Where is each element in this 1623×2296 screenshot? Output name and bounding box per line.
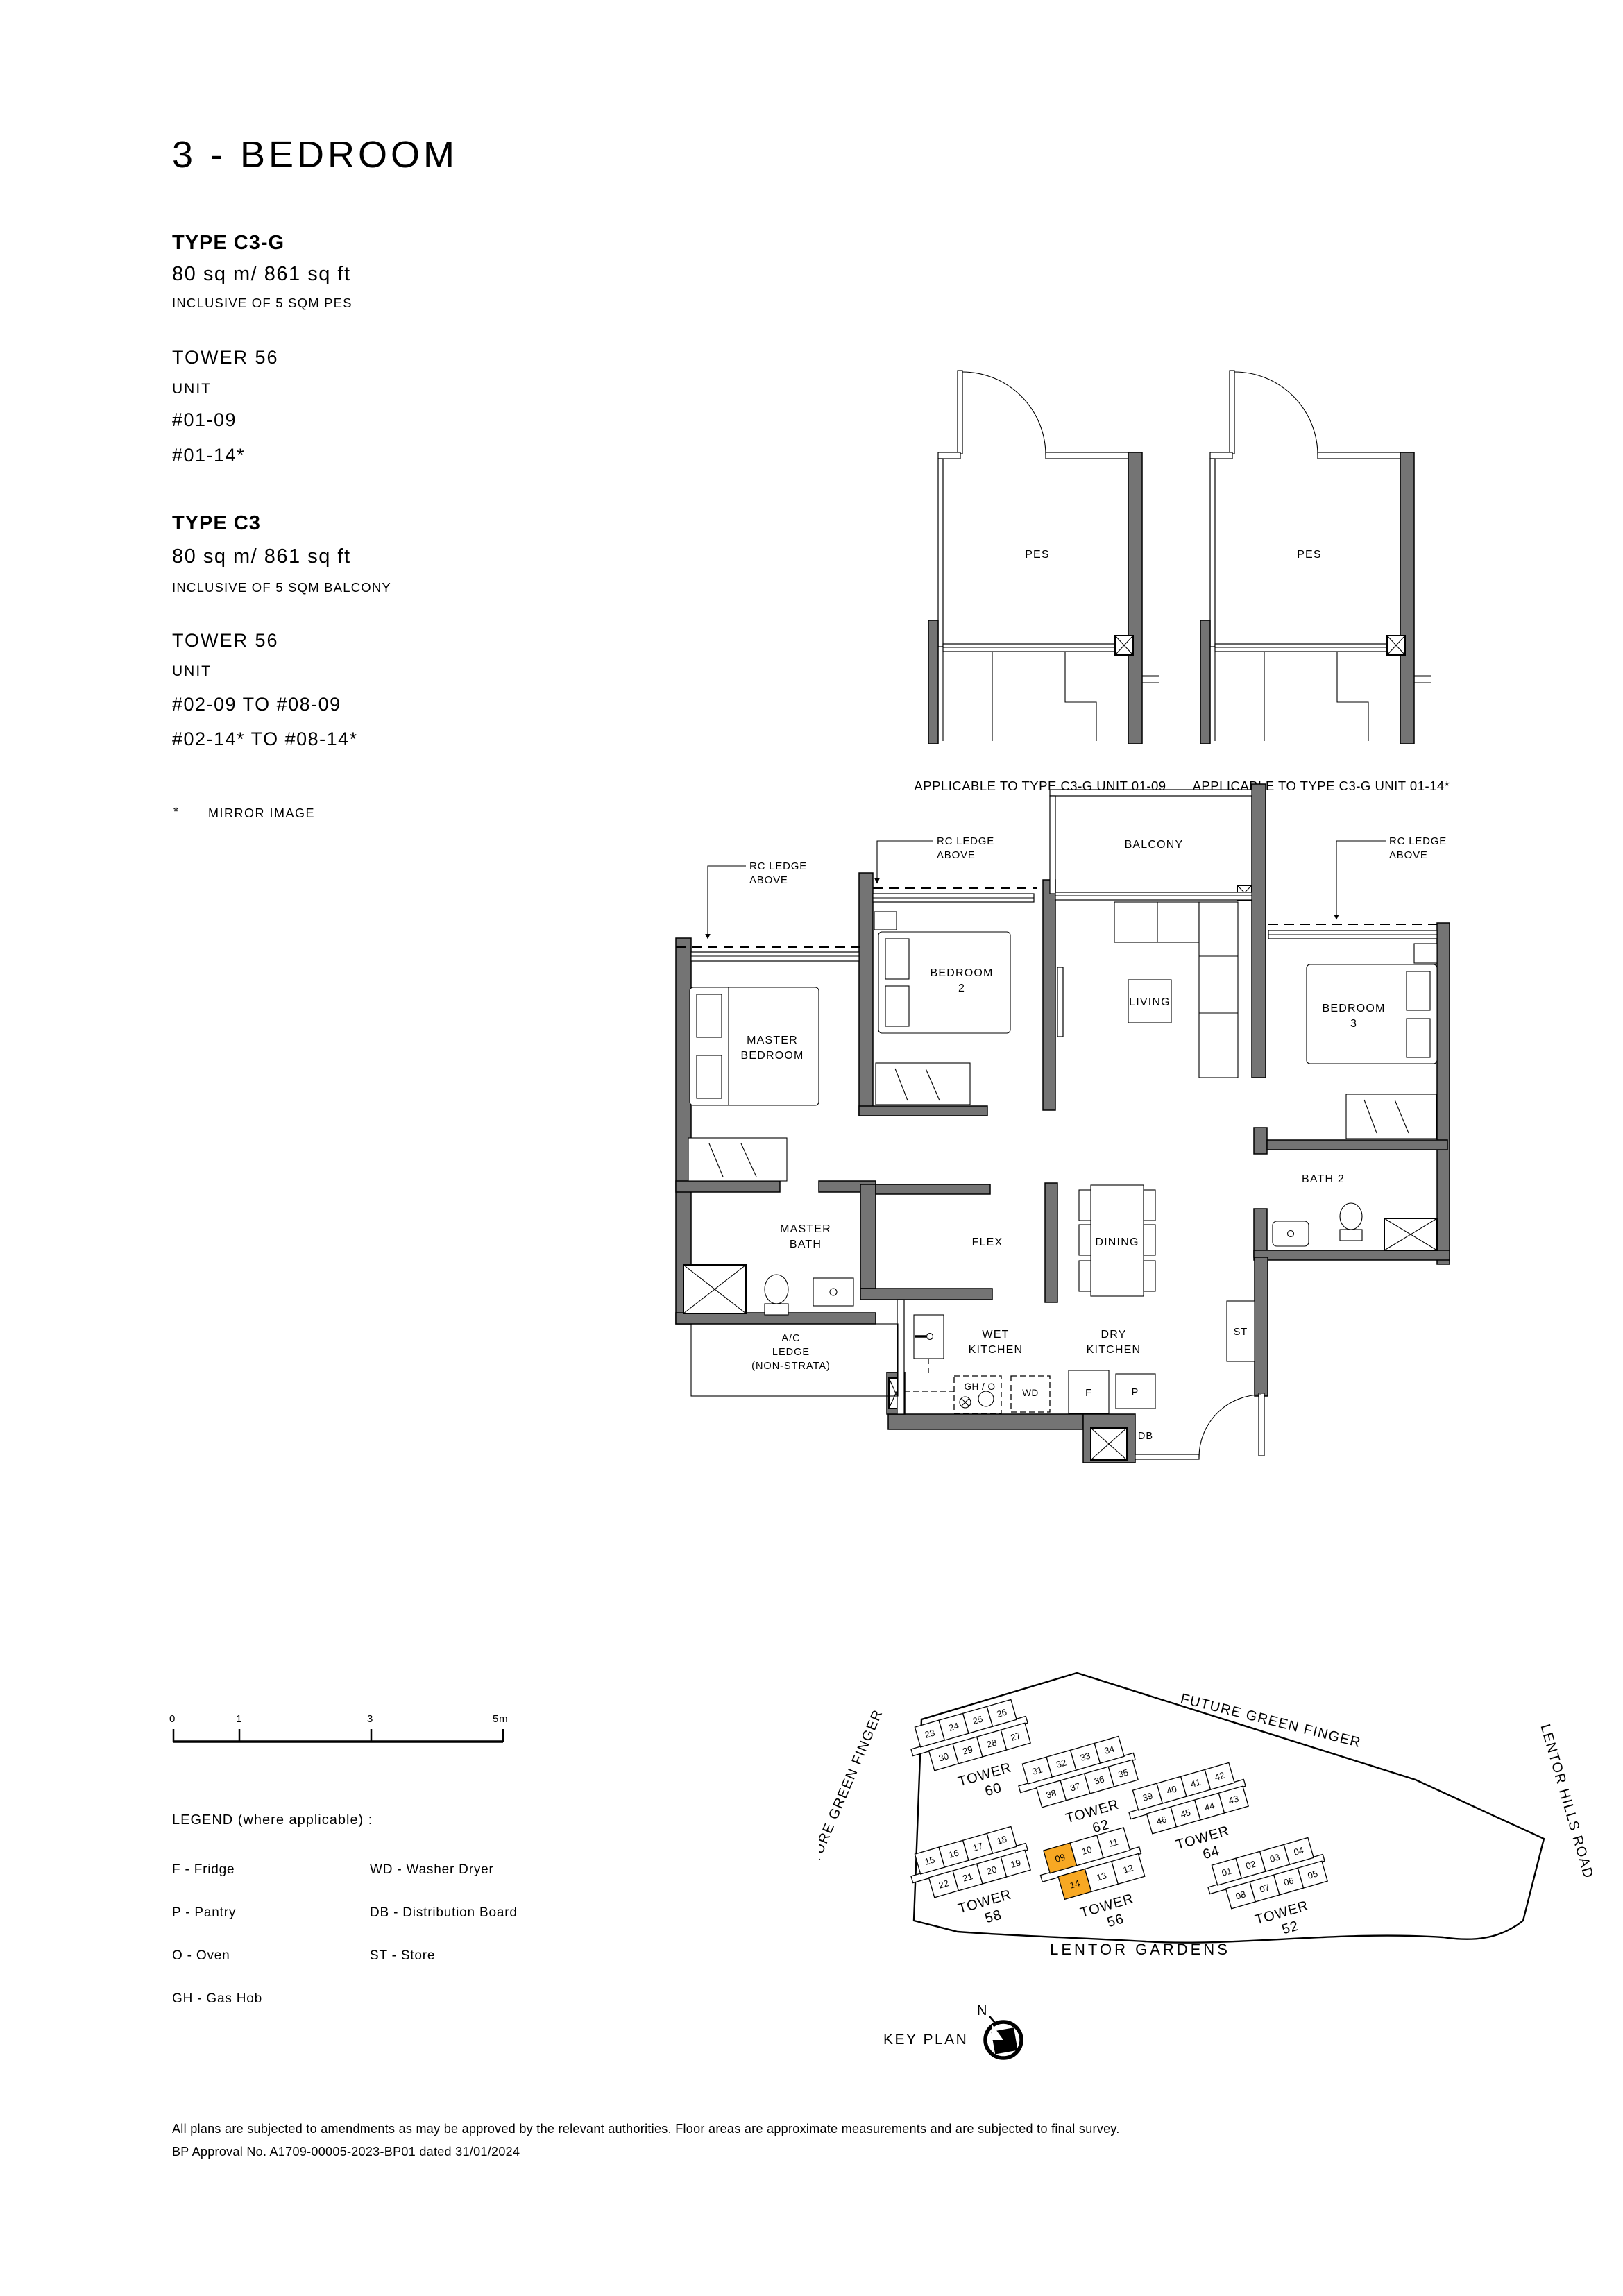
legend-pantry: P - Pantry <box>172 1905 236 1921</box>
ac-ledge-label-1: A/C <box>781 1333 800 1344</box>
ac-ledge-label-3: (NON-STRATA) <box>751 1361 831 1372</box>
rc-ledge-line1: RC LEDGE <box>749 860 807 872</box>
mirror-note-text: MIRROR IMAGE <box>208 806 315 821</box>
master-bedroom-label-2: BEDROOM <box>740 1050 804 1062</box>
keyplan-tower-52: 0102030408070605TOWER52 <box>1203 1835 1342 1954</box>
type1-tower: TOWER 56 <box>172 347 279 368</box>
type2-tower: TOWER 56 <box>172 630 279 652</box>
type1-note: INCLUSIVE OF 5 SQM PES <box>172 296 352 311</box>
keyplan-tower-56: 091011141312TOWER56 <box>1034 1825 1159 1944</box>
windows-and-ledges <box>676 790 1437 1459</box>
mini-plan-unit-01-09: PES <box>923 355 1159 744</box>
wet-kitchen-label-2: KITCHEN <box>969 1344 1023 1356</box>
type2-unit-2: #02-14* TO #08-14* <box>172 729 358 750</box>
north-label: N <box>977 2003 987 2018</box>
disclaimer-line-1: All plans are subjected to amendments as… <box>172 2122 1120 2136</box>
master-bath-label-1: MASTER <box>780 1223 831 1235</box>
mini-plan-room-label: PES <box>1025 549 1050 561</box>
rc-ledge-line1: RC LEDGE <box>1389 835 1447 847</box>
dry-kitchen-label-1: DRY <box>1101 1329 1126 1341</box>
keyplan-tower-number: 60 <box>983 1780 1003 1800</box>
keyplan-tower-60: 2324252630292827TOWER60 <box>906 1697 1045 1816</box>
fridge-label: F <box>1085 1388 1092 1399</box>
key-plan: FUTURE GREEN FINGER FUTURE GREEN FINGER … <box>819 1589 1610 2061</box>
type2-note: INCLUSIVE OF 5 SQM BALCONY <box>172 580 391 595</box>
distribution-board-label: DB <box>1138 1431 1153 1442</box>
washer-dryer-label: WD <box>1022 1388 1039 1398</box>
master-bedroom-label-1: MASTER <box>747 1035 798 1046</box>
road-future-green-finger-top: FUTURE GREEN FINGER <box>1179 1691 1363 1751</box>
rc-ledge-line1: RC LEDGE <box>937 835 994 847</box>
key-plan-label: KEY PLAN <box>883 2032 968 2048</box>
road-lentor-gardens: LENTOR GARDENS <box>1050 1941 1230 1958</box>
dining-label: DINING <box>1095 1236 1139 1248</box>
living-label: LIVING <box>1129 996 1171 1008</box>
rc-ledge-line2: ABOVE <box>749 874 788 886</box>
scale-0: 0 <box>169 1713 176 1725</box>
rc-ledge-line2: ABOVE <box>937 849 976 861</box>
type1-unit-label: UNIT <box>172 381 212 398</box>
legend-store: ST - Store <box>370 1948 435 1964</box>
type2-unit-1: #02-09 TO #08-09 <box>172 694 341 715</box>
mirror-note-symbol: * <box>173 805 180 819</box>
flex-label: FLEX <box>972 1236 1003 1248</box>
legend-oven: O - Oven <box>172 1948 230 1964</box>
legend-gas-hob: GH - Gas Hob <box>172 1991 262 2007</box>
type1-unit-1: #01-09 <box>172 409 237 431</box>
pantry-label: P <box>1132 1387 1139 1398</box>
north-arrow-icon: N <box>977 2003 1021 2058</box>
ac-ledge-label-2: LEDGE <box>772 1347 810 1358</box>
disclaimer-line-2: BP Approval No. A1709-00005-2023-BP01 da… <box>172 2145 520 2159</box>
keyplan-tower-number: 56 <box>1105 1911 1125 1930</box>
bedroom2-label-1: BEDROOM <box>930 967 993 979</box>
store-label: ST <box>1234 1327 1248 1338</box>
keyplan-tower-number: 58 <box>983 1907 1003 1927</box>
bedroom2-label-2: 2 <box>958 983 965 994</box>
type2-area: 80 sq m/ 861 sq ft <box>172 545 351 568</box>
scale-3: 3 <box>367 1713 373 1725</box>
legend-title: LEGEND (where applicable) : <box>172 1812 373 1828</box>
rc-ledge-annotation-right: RC LEDGE ABOVE <box>1336 835 1447 919</box>
balcony-label: BALCONY <box>1125 839 1184 851</box>
rc-ledge-annotation-middle: RC LEDGE ABOVE <box>877 835 994 883</box>
type2-name: TYPE C3 <box>172 512 261 535</box>
legend-distribution-board: DB - Distribution Board <box>370 1905 518 1921</box>
page-title: 3 - BEDROOM <box>172 133 458 176</box>
mini-plan-unit-01-14: PES <box>1195 355 1431 744</box>
rc-ledge-annotation-left: RC LEDGE ABOVE <box>708 860 807 938</box>
type2-unit-label: UNIT <box>172 663 212 680</box>
scale-1: 1 <box>236 1713 242 1725</box>
legend-fridge: F - Fridge <box>172 1862 235 1878</box>
scale-bar: 0 1 3 5m <box>167 1708 527 1757</box>
bedroom3-label-2: 3 <box>1350 1018 1357 1030</box>
floorplan-brochure-page: 3 - BEDROOM TYPE C3-G 80 sq m/ 861 sq ft… <box>0 0 1623 2296</box>
keyplan-tower-58: 1516171822212019TOWER58 <box>906 1824 1045 1943</box>
road-lentor-hills-road: LENTOR HILLS ROAD <box>1537 1722 1596 1880</box>
type1-area: 80 sq m/ 861 sq ft <box>172 263 351 286</box>
master-bath-label-2: BATH <box>790 1239 822 1250</box>
bedroom3-label-1: BEDROOM <box>1322 1003 1385 1014</box>
type1-unit-2: #01-14* <box>172 445 245 466</box>
legend-washer-dryer: WD - Washer Dryer <box>370 1862 494 1878</box>
gas-hob-oven-label: GH / O <box>964 1381 995 1392</box>
bath2-label: BATH 2 <box>1302 1173 1345 1185</box>
wet-kitchen-label-1: WET <box>982 1329 1009 1341</box>
keyplan-tower-62: 3132333438373635TOWER62 <box>1013 1734 1153 1853</box>
mini-plan-room-label: PES <box>1297 549 1322 561</box>
road-future-green-finger-left: FUTURE GREEN FINGER <box>819 1707 886 1884</box>
type1-name: TYPE C3-G <box>172 232 284 255</box>
rc-ledge-line2: ABOVE <box>1389 849 1428 861</box>
dry-kitchen-label-2: KITCHEN <box>1087 1344 1141 1356</box>
keyplan-tower-number: 64 <box>1201 1844 1221 1863</box>
keyplan-tower-number: 52 <box>1280 1919 1300 1938</box>
scale-5m: 5m <box>493 1713 508 1725</box>
main-floor-plan: RC LEDGE ABOVE RC LEDGE ABOVE RC LEDGE A… <box>659 763 1589 1471</box>
